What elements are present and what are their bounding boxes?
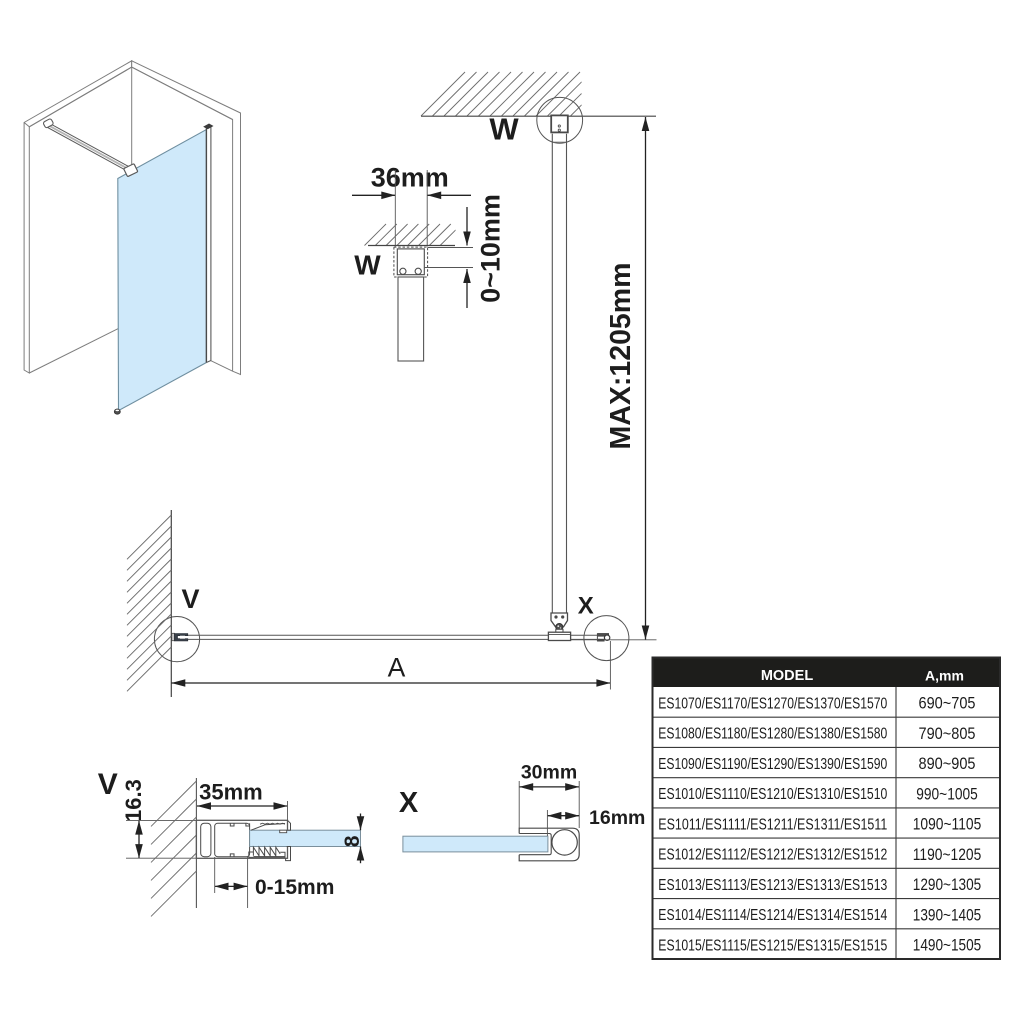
svg-text:0~10mm: 0~10mm xyxy=(476,194,506,303)
svg-text:ES1014/ES1114/ES1214/ES1314/ES: ES1014/ES1114/ES1214/ES1314/ES1514 xyxy=(658,907,887,924)
svg-text:1390~1405: 1390~1405 xyxy=(913,906,982,924)
svg-text:690~705: 690~705 xyxy=(919,695,976,713)
svg-text:W: W xyxy=(489,112,519,147)
svg-text:30mm: 30mm xyxy=(521,761,577,783)
svg-text:ES1012/ES1112/ES1212/ES1312/ES: ES1012/ES1112/ES1212/ES1312/ES1512 xyxy=(658,847,887,864)
svg-text:ES1080/ES1180/ES1280/ES1380/ES: ES1080/ES1180/ES1280/ES1380/ES1580 xyxy=(658,726,887,743)
svg-text:W: W xyxy=(354,250,381,281)
svg-text:A: A xyxy=(388,653,406,683)
svg-text:790~805: 790~805 xyxy=(919,725,976,743)
svg-text:0-15mm: 0-15mm xyxy=(255,876,334,899)
svg-text:V: V xyxy=(181,584,199,614)
svg-text:8: 8 xyxy=(341,835,364,847)
svg-text:ES1011/ES1111/ES1211/ES1311/ES: ES1011/ES1111/ES1211/ES1311/ES1511 xyxy=(658,816,887,833)
svg-text:1190~1205: 1190~1205 xyxy=(913,846,982,864)
svg-text:1090~1105: 1090~1105 xyxy=(913,816,982,834)
svg-text:890~905: 890~905 xyxy=(919,755,976,773)
svg-text:36mm: 36mm xyxy=(371,162,449,192)
svg-text:X: X xyxy=(578,593,594,620)
svg-text:1290~1305: 1290~1305 xyxy=(913,876,982,894)
svg-text:ES1090/ES1190/ES1290/ES1390/ES: ES1090/ES1190/ES1290/ES1390/ES1590 xyxy=(658,756,887,773)
svg-text:X: X xyxy=(399,787,419,819)
svg-text:ES1015/ES1115/ES1215/ES1315/ES: ES1015/ES1115/ES1215/ES1315/ES1515 xyxy=(658,937,887,954)
svg-text:16mm: 16mm xyxy=(589,807,645,829)
svg-text:ES1013/ES1113/ES1213/ES1313/ES: ES1013/ES1113/ES1213/ES1313/ES1513 xyxy=(658,877,887,894)
svg-text:ES1070/ES1170/ES1270/ES1370/ES: ES1070/ES1170/ES1270/ES1370/ES1570 xyxy=(658,696,887,713)
svg-text:35mm: 35mm xyxy=(199,779,263,804)
svg-text:V: V xyxy=(98,768,118,801)
svg-text:MODEL: MODEL xyxy=(761,668,814,684)
svg-text:MAX:1205mm: MAX:1205mm xyxy=(605,263,637,450)
svg-text:1490~1505: 1490~1505 xyxy=(913,937,982,955)
svg-text:A,mm: A,mm xyxy=(925,668,964,684)
svg-text:16.3: 16.3 xyxy=(121,779,146,822)
svg-text:990~1005: 990~1005 xyxy=(916,785,978,803)
svg-text:ES1010/ES1110/ES1210/ES1310/ES: ES1010/ES1110/ES1210/ES1310/ES1510 xyxy=(658,786,887,803)
